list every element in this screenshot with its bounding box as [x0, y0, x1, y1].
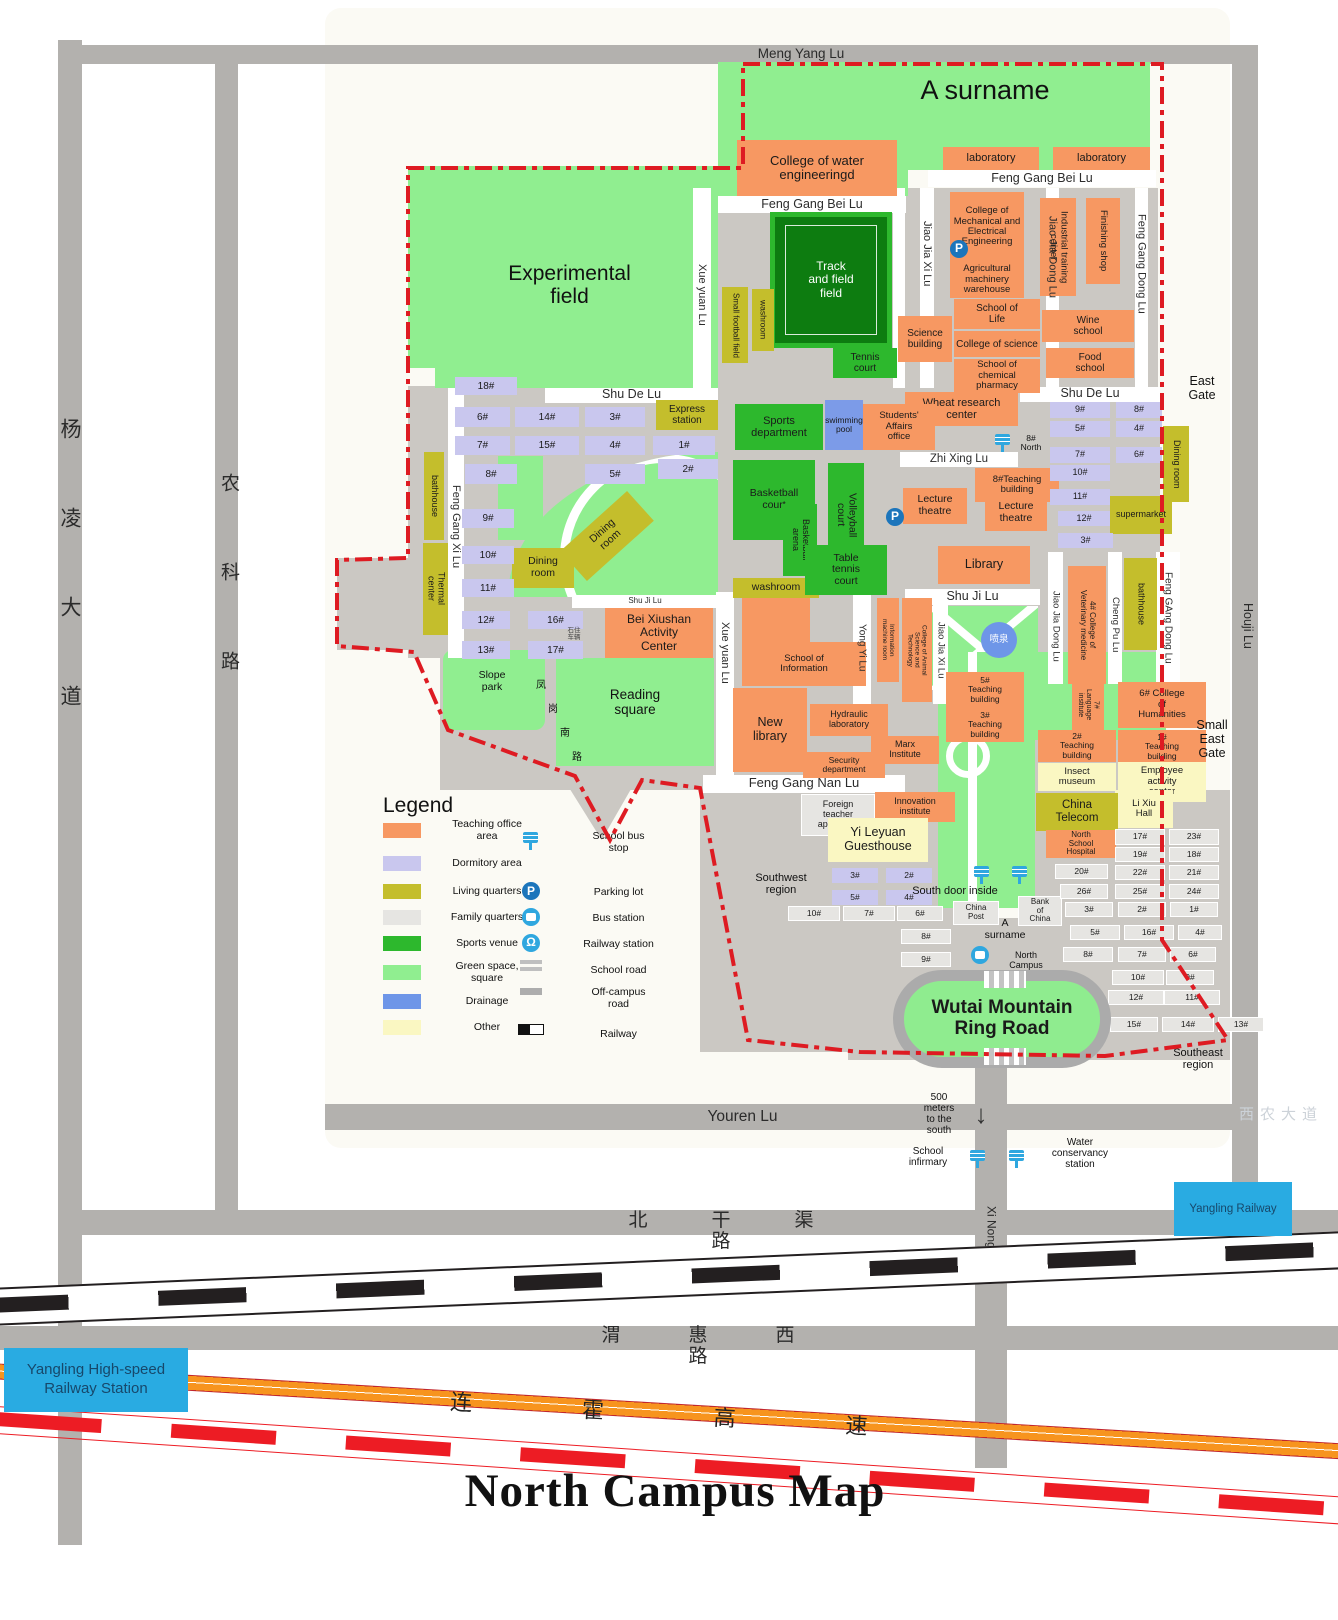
- family-sw-10: 10#: [788, 906, 840, 921]
- building-hydraulic-lab: Hydraulic laboratory: [810, 704, 888, 736]
- building-tennis-court: Tennis court: [833, 348, 897, 378]
- family-se-8: 8#: [1063, 947, 1113, 962]
- crosswalk-north: [984, 971, 1026, 988]
- building-lecture-theatre-2: Lecture theatre: [985, 495, 1047, 531]
- legend-swatch: [383, 994, 421, 1009]
- building-china-telecom: China Telecom: [1036, 793, 1118, 831]
- legend-symbol-label: Railway station: [554, 938, 683, 950]
- dorm-sw-5: 5#: [832, 890, 878, 905]
- family-se-9: 9#: [1166, 970, 1214, 985]
- road-label-shu-de-lu-w: Shu De Lu: [545, 387, 718, 403]
- building-new-library: New library: [733, 688, 807, 772]
- legend-symbol-0: School bus stop: [518, 830, 683, 854]
- legend-symbol-label: School bus stop: [554, 830, 683, 854]
- parking-glyph: [522, 882, 540, 900]
- family-se-17: 17#: [1115, 829, 1165, 845]
- legend-swatch: [383, 1020, 421, 1035]
- bus-stop-icon: [518, 832, 544, 852]
- dorm-e-8: 8#: [1116, 402, 1162, 418]
- building-swimming-pool: swimming pool: [825, 400, 863, 450]
- label-water-conservancy: Water conservancy station: [1034, 1132, 1126, 1174]
- ground-west-protrusion: [337, 558, 413, 650]
- building-college-water: College of water engineeringd: [737, 140, 897, 196]
- label-a-surname: A surname: [885, 72, 1085, 110]
- family-sw-7: 7#: [843, 906, 895, 921]
- dorm-7: 7#: [455, 436, 510, 455]
- legend-symbol-3: Railway station: [518, 934, 683, 954]
- road-label-jiao-jia-xi-lu-n: Jiao Jia Xi Lu: [920, 196, 934, 311]
- family-se-12: 12#: [1108, 990, 1164, 1005]
- label-small-east-gate: Small East Gate: [1182, 714, 1242, 766]
- building-agri-warehouse: Agricultural machinery warehouse: [950, 262, 1024, 298]
- family-sw-6: 6#: [897, 906, 943, 921]
- label-north-campus: North Campus: [1000, 950, 1052, 972]
- railway-station-glyph: [522, 934, 540, 952]
- road-label-shu-de-lu-e: Shu De Lu: [1020, 386, 1160, 402]
- legend: Legend Teaching office areaDormitory are…: [378, 794, 688, 1054]
- legend-swatch: [383, 965, 421, 980]
- road-label-feng-gang-bei-lu-w: Feng Gang Bei Lu: [718, 196, 906, 213]
- bus-stop-icon-south-2: [1012, 866, 1028, 884]
- building-guesthouse: Yi Leyuan Guesthouse: [828, 818, 928, 862]
- road-label-feng-gang-nan-lu: Feng Gang Nan Lu: [703, 774, 905, 793]
- bus-station-glyph: [522, 908, 540, 926]
- legend-swatch: [383, 823, 421, 838]
- building-laboratory-1: laboratory: [943, 147, 1039, 170]
- railway-station-icon: [518, 934, 544, 954]
- building-laboratory-2: laboratory: [1053, 147, 1150, 170]
- building-veterinary: 4# College of Veterinary medicine: [1068, 566, 1106, 684]
- bus-stop-icon-infirmary: [970, 1150, 986, 1168]
- legend-swatch: [383, 856, 421, 871]
- dorm-12: 12#: [462, 611, 510, 629]
- legend-area-1: Dormitory area: [383, 856, 543, 871]
- building-sports-dept: Sports department: [735, 404, 823, 450]
- family-se-19: 19#: [1115, 847, 1165, 862]
- road-label-feng-gang-bei-lu-e: Feng Gang Bei Lu: [928, 170, 1156, 187]
- road-label-feng-gang-dong-lu-s: Feng GAng Dong Lu: [1157, 552, 1179, 684]
- bus-station-icon: [518, 908, 544, 928]
- label-experimental-field: Experimental field: [462, 256, 677, 314]
- dorm-15: 15#: [515, 436, 579, 455]
- legend-symbol-2: Bus station: [518, 908, 683, 928]
- family-se-7: 7#: [1118, 947, 1166, 962]
- dorm-e-10: 10#: [1050, 465, 1110, 481]
- legend-symbol-label: Bus station: [554, 912, 683, 924]
- road-label-feng-gang-xi-lu: Feng Gang Xi Lu: [448, 462, 464, 592]
- label-slope-park: Slope park: [460, 666, 524, 698]
- bus-station-icon-north-campus: [971, 946, 989, 964]
- road-label-xue-yuan-lu-s: Xue yuan Lu: [717, 598, 733, 708]
- building-food-school: Food school: [1046, 348, 1134, 378]
- legend-swatch: [383, 910, 421, 925]
- dorm-e-3: 3#: [1058, 533, 1113, 548]
- building-supermarket: supermarket: [1110, 496, 1172, 534]
- legend-symbol-label: Railway: [554, 1028, 683, 1040]
- building-track-field: Track and field field: [770, 212, 892, 348]
- dorm-1: 1#: [653, 436, 715, 455]
- building-info-block: [742, 598, 810, 642]
- label-fengnan-1: 凤: [534, 678, 548, 692]
- building-lecture-theatre-1: Lecture theatre: [903, 488, 967, 524]
- legend-symbol-label: School road: [554, 964, 683, 976]
- legend-title: Legend: [383, 794, 453, 818]
- family-se-13: 13#: [1218, 1017, 1264, 1032]
- family-se-5: 5#: [1070, 925, 1120, 940]
- building-students-affairs: Students' Affairs office: [863, 404, 935, 450]
- building-dining-east: Dining room: [1163, 426, 1189, 502]
- building-science: Science building: [898, 316, 952, 362]
- bus-stop-icon-8north: [995, 434, 1011, 452]
- road-label-jiao-jia-dong-lu-s: Jiao Jia Dong Lu: [1048, 566, 1063, 686]
- railway-icon: [518, 1024, 544, 1044]
- off-campus-road-icon: [518, 988, 544, 1008]
- off-campus-road-glyph: [520, 988, 542, 995]
- road-label-jiao-jia-xi-lu-s: Jiao Jia Xi Lu: [933, 600, 948, 700]
- parking-icon-north: [950, 240, 968, 258]
- label-reading-square: Reading square: [590, 682, 680, 724]
- label-fengnan-2: 岗: [546, 702, 560, 716]
- building-school-life: School of Life: [954, 299, 1040, 329]
- dorm-10: 10#: [462, 546, 514, 564]
- family-se-2: 2#: [1118, 902, 1166, 917]
- label-southeast-region: Southeast region: [1156, 1044, 1240, 1074]
- road-label-yong-yi-lu: Yong Yi Lu: [853, 598, 871, 698]
- building-animal-science: College of Animal Science and Technology: [902, 598, 932, 702]
- dorm-3: 3#: [585, 407, 645, 427]
- dorm-18: 18#: [455, 377, 517, 395]
- family-se-20: 20#: [1055, 864, 1108, 879]
- building-teaching-3: 3# Teaching building: [946, 708, 1024, 742]
- dorm-6: 6#: [455, 407, 510, 427]
- legend-swatch: [383, 936, 421, 951]
- family-se-15: 15#: [1110, 1017, 1158, 1032]
- legend-swatch: [383, 884, 421, 899]
- family-se-14: 14#: [1162, 1017, 1214, 1032]
- road-label-houji-lu: Houji Lu: [1237, 576, 1257, 676]
- building-washroom-north: washroom: [752, 289, 774, 351]
- dorm-9: 9#: [462, 509, 514, 528]
- legend-symbol-4: School road: [518, 960, 683, 980]
- road-label-cheng-pu-lu: Cheng Pu Lu: [1108, 572, 1122, 677]
- label-faint-road: 西农大道: [1228, 1104, 1334, 1126]
- family-se-4: 4#: [1178, 925, 1222, 940]
- dorm-11: 11#: [462, 579, 514, 597]
- road-label-youren-lu: Youren Lu: [640, 1105, 845, 1129]
- legend-symbol-5: Off-campus road: [518, 986, 683, 1010]
- legend-symbol-label: Parking lot: [554, 886, 683, 898]
- bus-stop-icon-south-1: [974, 866, 990, 884]
- railway-glyph: [518, 1024, 544, 1035]
- school-road-glyph: [520, 960, 542, 971]
- label-a-surname-south: A surname: [978, 916, 1032, 944]
- family-sw-9: 9#: [901, 952, 951, 967]
- label-fengnan-3: 南: [558, 726, 572, 740]
- dorm-e-12: 12#: [1058, 511, 1110, 526]
- building-school-hospital: North School Hospital: [1046, 830, 1116, 858]
- dorm-e-6: 6#: [1116, 447, 1162, 463]
- yangling-highspeed-station-box: Yangling High-speed Railway Station: [4, 1348, 188, 1412]
- road-label-xue-yuan-lu-n: Xue yuan Lu: [694, 240, 710, 350]
- school-road-icon: [518, 960, 544, 980]
- label-school-infirmary: School infirmary: [900, 1144, 956, 1170]
- building-bathhouse-west: bathhouse: [424, 452, 444, 540]
- building-teaching-2: 2# Teaching building: [1038, 730, 1116, 762]
- dorm-sw-3: 3#: [832, 868, 878, 883]
- building-college-science: College of science: [954, 331, 1040, 357]
- road-label-shu-ji-lu-w: Shu Ji Lu: [572, 594, 718, 608]
- legend-symbol-label: Off-campus road: [554, 986, 683, 1010]
- road-label-shu-ji-lu-e: Shu Ji Lu: [905, 588, 1040, 605]
- road-label-zhi-xing-lu: Zhi Xing Lu: [900, 451, 1018, 467]
- label-east-gate: East Gate: [1176, 372, 1228, 406]
- bus-stop-icon-water: [1009, 1150, 1025, 1168]
- legend-symbol-6: Railway: [518, 1024, 683, 1044]
- page-title: North Campus Map: [325, 1458, 1025, 1524]
- road-label-weihui: 渭惠西路: [562, 1326, 902, 1350]
- building-bathhouse-east: bathhouse: [1124, 558, 1157, 650]
- label-tiny-note: 石住 车辆: [561, 624, 587, 644]
- dorm-e-11: 11#: [1050, 489, 1110, 505]
- arrow-south-icon: ↓: [972, 1088, 990, 1140]
- label-8-north: 8# North: [1014, 430, 1048, 456]
- family-se-16: 16#: [1124, 925, 1174, 940]
- legend-symbol-1: Parking lot: [518, 882, 683, 902]
- dorm-e-9: 9#: [1050, 402, 1110, 418]
- label-fengnan-4: 路: [570, 750, 584, 764]
- road-label-feng-gang-dong-lu-n: Feng Gang Dong Lu: [1135, 194, 1148, 334]
- dorm-sw-2: 2#: [886, 868, 932, 883]
- road-label-meng-yang-lu: Meng Yang Lu: [740, 45, 862, 64]
- dorm-4: 4#: [585, 436, 645, 455]
- dorm-13: 13#: [462, 641, 510, 659]
- building-info-machine-room: Information machine room: [877, 598, 899, 682]
- legend-area-label: Dormitory area: [431, 857, 543, 869]
- family-se-22: 22#: [1115, 865, 1165, 880]
- road-label-yangling-dadao: 杨凌大道: [59, 418, 81, 808]
- dorm-5: 5#: [585, 464, 645, 484]
- building-table-tennis: Table tennis court: [805, 545, 887, 595]
- family-se-6: 6#: [1170, 947, 1216, 962]
- dorm-14: 14#: [515, 407, 579, 427]
- family-se-21: 21#: [1169, 865, 1219, 880]
- dorm-e-4: 4#: [1116, 421, 1162, 437]
- family-se-11: 11#: [1164, 990, 1220, 1005]
- building-finishing-shop: Finishing shop: [1086, 198, 1120, 284]
- bus-stop-glyph: [523, 832, 539, 850]
- parking-icon: [518, 882, 544, 902]
- yangling-railway-station-box: Yangling Railway: [1174, 1182, 1292, 1236]
- building-library: Library: [938, 546, 1030, 584]
- family-se-25: 25#: [1115, 884, 1165, 899]
- parking-icon-central: [886, 508, 904, 526]
- building-teaching-5: 5# Teaching building: [946, 672, 1024, 708]
- road-label-jiao-jia-dong-lu-n: Jiao Jia Dong Lu: [1046, 194, 1059, 319]
- family-se-24: 24#: [1169, 884, 1219, 899]
- building-language-7: 7# Language institute: [1072, 674, 1104, 736]
- building-insect-museum: Insect museum: [1038, 763, 1116, 791]
- building-bei-xiushan: Bei Xiushan Activity Center: [605, 608, 713, 658]
- north-campus-map-page: College of water engineeringdlaboratoryl…: [0, 0, 1338, 1620]
- family-se-3: 3#: [1065, 902, 1113, 917]
- family-se-23: 23#: [1169, 829, 1219, 845]
- dorm-e-5: 5#: [1050, 421, 1110, 437]
- label-southwest-region: Southwest region: [736, 868, 826, 900]
- family-se-1: 1#: [1170, 902, 1218, 917]
- dorm-e-7: 7#: [1050, 447, 1110, 463]
- family-se-10: 10#: [1112, 970, 1164, 985]
- road-label-nongke-lu: 农科路: [216, 473, 238, 763]
- fountain-circle: 喷泉: [981, 622, 1017, 658]
- building-school-information: School of Information: [742, 642, 866, 686]
- building-li-xiu-hall: Li Xiu Hall: [1115, 790, 1173, 828]
- road-label-beiganqu: 北干渠路: [588, 1211, 918, 1235]
- dorm-8: 8#: [465, 464, 517, 484]
- label-500-meters: 500 meters to the south: [914, 1086, 964, 1142]
- building-express-station: Express station: [656, 400, 718, 430]
- family-se-18: 18#: [1169, 847, 1219, 862]
- building-thermal-center: Thermal center: [423, 543, 448, 635]
- label-south-door: South door inside: [898, 884, 1012, 898]
- crosswalk-south: [984, 1048, 1026, 1065]
- family-sw-8: 8#: [901, 929, 951, 944]
- dorm-2: 2#: [658, 459, 718, 479]
- family-se-26: 26#: [1060, 884, 1108, 899]
- building-small-football: Small football field: [722, 287, 748, 363]
